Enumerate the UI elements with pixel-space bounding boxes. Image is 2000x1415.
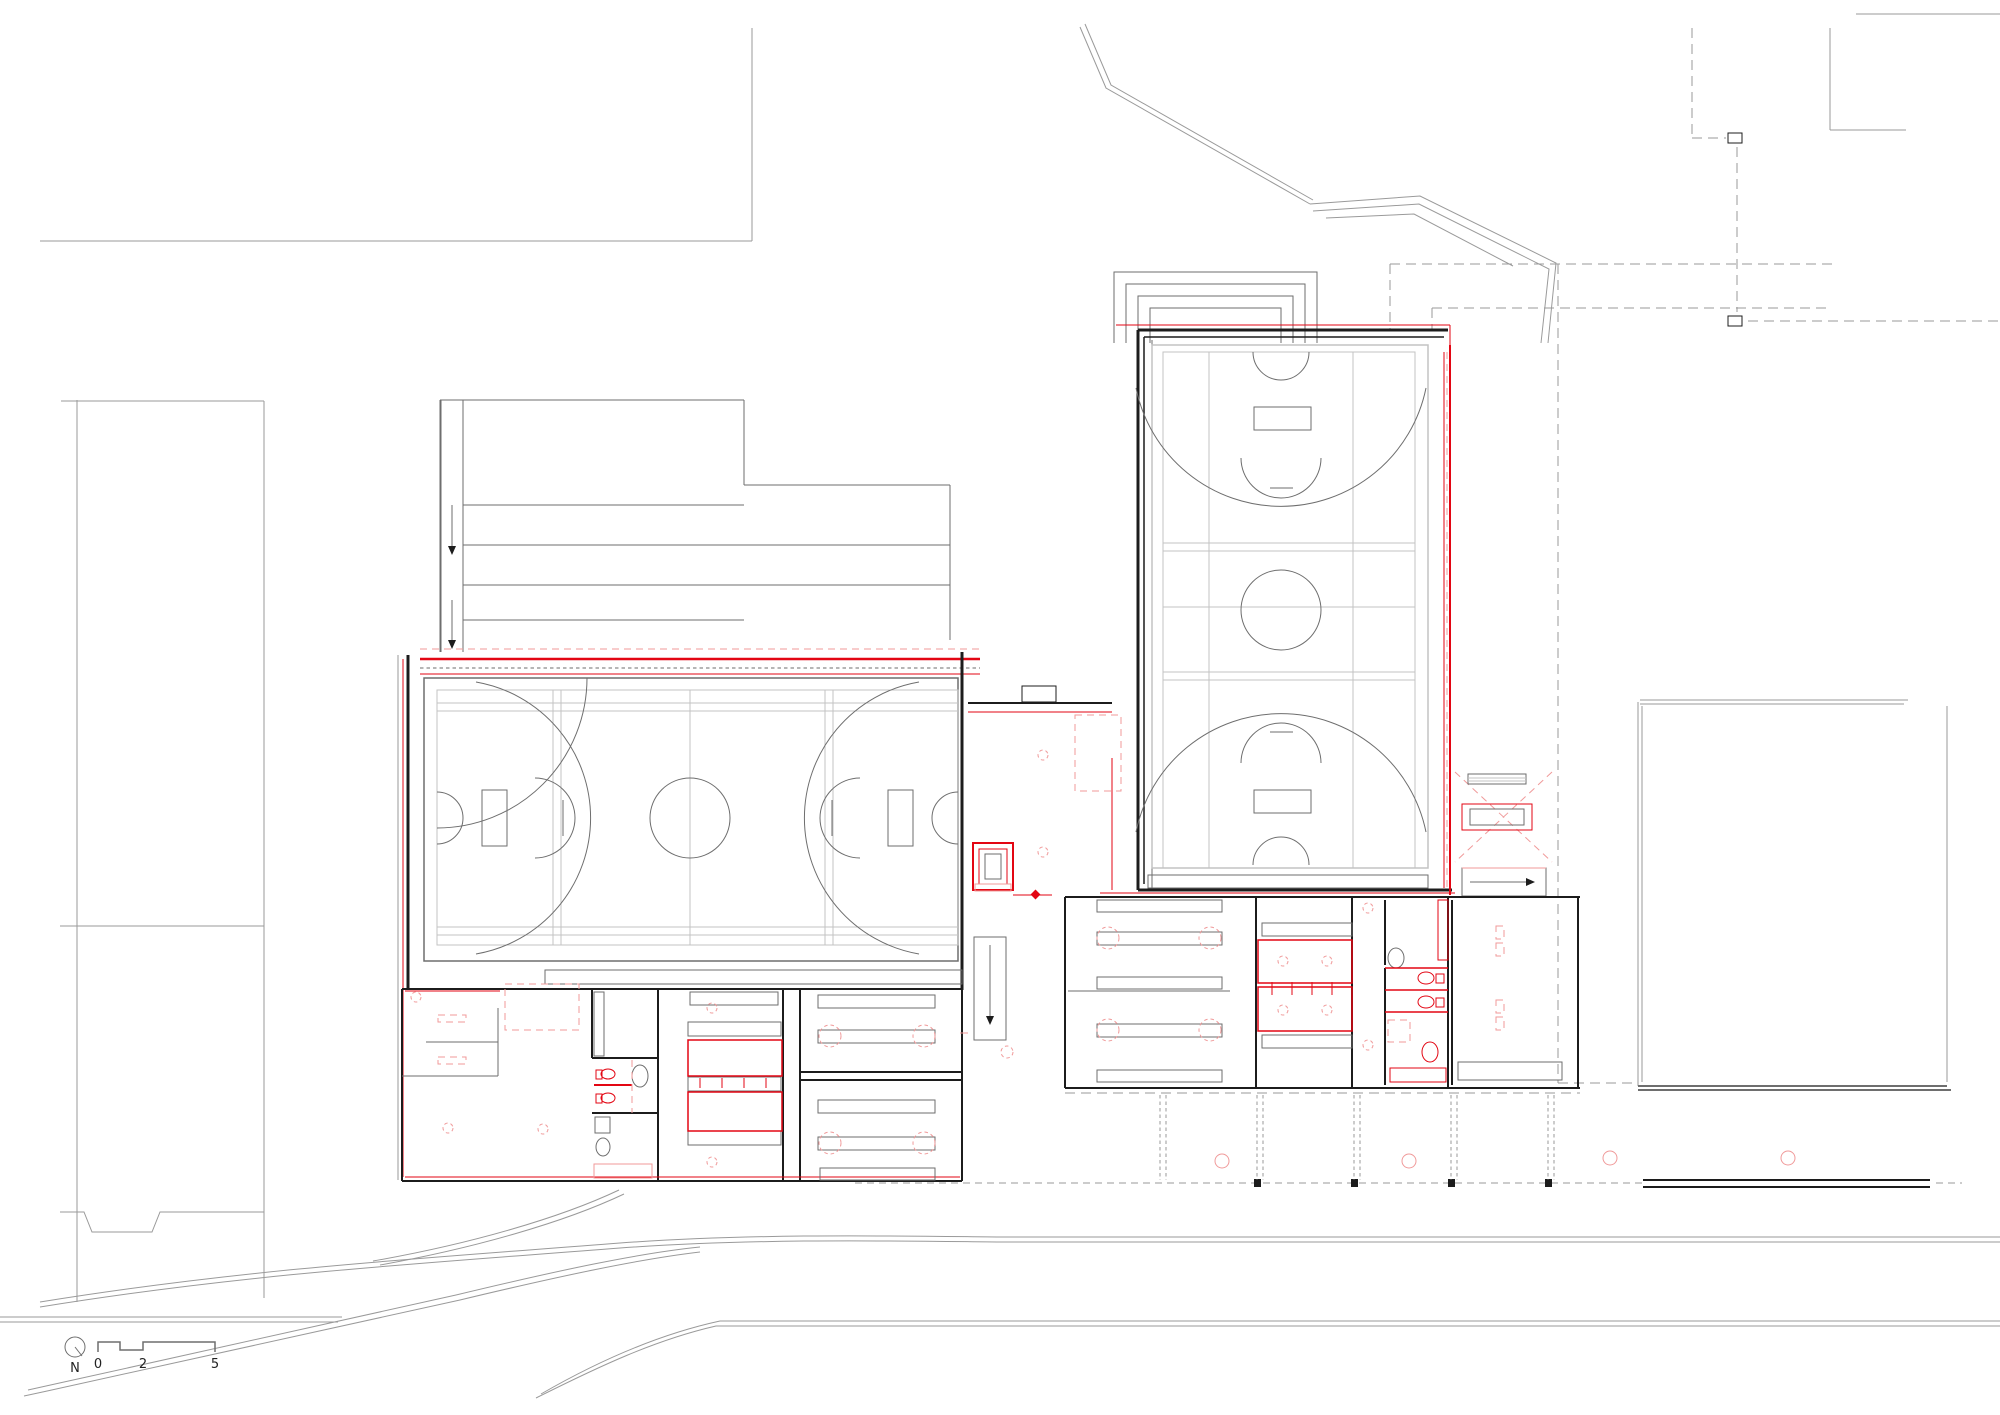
washer-icon bbox=[595, 1117, 610, 1133]
road-lines bbox=[0, 1190, 2000, 1398]
equipment-zone-dashed bbox=[505, 984, 579, 1030]
scale-tick-2: 2 bbox=[139, 1357, 147, 1372]
east-stepped-roof bbox=[1114, 272, 1317, 343]
canopy-column-axes bbox=[1065, 1093, 1580, 1180]
neighbor-building-east bbox=[1638, 700, 1951, 1090]
connector-lobby bbox=[960, 686, 1121, 1058]
sports-hall-west bbox=[398, 400, 980, 1181]
column-base-icon bbox=[1448, 1179, 1455, 1187]
column-base-icon bbox=[1545, 1179, 1552, 1187]
shower-rooms-west bbox=[688, 1040, 782, 1131]
wc-cells bbox=[594, 1060, 632, 1113]
column-base-icon bbox=[1254, 1179, 1261, 1187]
shower-tray bbox=[1388, 1020, 1410, 1042]
shelf-unit bbox=[594, 992, 604, 1056]
scale-bar-shape bbox=[98, 1342, 215, 1352]
hall-bench-row bbox=[1148, 875, 1428, 888]
boundary-dashed-northeast bbox=[1390, 28, 1998, 1083]
basin-icon bbox=[596, 1138, 610, 1156]
scale-tick-0: 0 bbox=[94, 1357, 102, 1372]
locker-room-benches-1 bbox=[688, 992, 781, 1145]
shower-rooms-east bbox=[1258, 923, 1352, 1048]
north-label: N bbox=[70, 1361, 80, 1376]
facade-columns bbox=[428, 638, 980, 654]
hall-bench-row bbox=[545, 970, 962, 984]
basketball-court-east bbox=[1136, 345, 1428, 888]
wc-fixture-icon bbox=[632, 1065, 648, 1087]
column-base-icon bbox=[1351, 1179, 1358, 1187]
locker-room-east-benches bbox=[1068, 900, 1230, 1082]
stair-arrow-icon bbox=[986, 1016, 994, 1025]
site-boundary-northwest bbox=[40, 28, 752, 241]
walkway-edge bbox=[855, 1179, 1962, 1187]
locker-strip bbox=[1438, 900, 1448, 960]
boundary-marker-icon bbox=[1728, 316, 1742, 326]
scale-tick-5: 5 bbox=[211, 1357, 219, 1372]
scale-bar: N 0 2 5 bbox=[65, 1337, 219, 1376]
bench-row bbox=[1458, 1062, 1562, 1080]
goal-niche bbox=[1022, 686, 1056, 702]
court-markings-east bbox=[1136, 352, 1426, 865]
site-boundary-diagonal bbox=[1080, 24, 1556, 343]
east-hall-walls bbox=[1110, 325, 1482, 895]
site-context bbox=[0, 14, 2000, 1398]
bench-red-dashed bbox=[594, 1164, 652, 1178]
site-corner-northeast bbox=[1830, 14, 2000, 130]
wc-area-east bbox=[1385, 900, 1448, 1082]
west-hall-walls bbox=[398, 652, 962, 1180]
basketball-court-west bbox=[424, 678, 962, 984]
locker-room-benches-2 bbox=[818, 995, 935, 1180]
west-roof-terrace bbox=[440, 400, 950, 652]
basin-icon bbox=[1388, 948, 1404, 968]
bench-red bbox=[1390, 1068, 1446, 1082]
west-facade-columns bbox=[1110, 346, 1138, 886]
boundary-marker-icon bbox=[1728, 133, 1742, 143]
entrance-mat-dashed bbox=[1075, 715, 1121, 791]
radiator-icon bbox=[438, 1015, 466, 1022]
sprinkler-icons-east bbox=[1363, 903, 1373, 1050]
east-annex-ramp bbox=[1455, 772, 1552, 896]
radiator-icon bbox=[438, 1057, 466, 1064]
sports-hall-east bbox=[1065, 272, 1580, 1088]
floor-plan-drawing: N 0 2 5 bbox=[0, 0, 2000, 1415]
east-room bbox=[1458, 926, 1562, 1080]
locker-block-east bbox=[1065, 893, 1580, 1088]
court-markings-west bbox=[437, 678, 958, 954]
driveway-curve bbox=[373, 1190, 624, 1265]
door-marker-icon bbox=[1031, 890, 1041, 900]
plan-canvas: N 0 2 5 bbox=[0, 0, 2000, 1415]
stair-northwest bbox=[441, 400, 463, 652]
sprinkler-icons-lobby bbox=[1001, 750, 1048, 1058]
stair-connector bbox=[960, 937, 1006, 1040]
north-arrow bbox=[65, 1337, 85, 1357]
neighbor-building-west bbox=[60, 400, 264, 1302]
wc-fixture-icon bbox=[1422, 1042, 1438, 1062]
walkway-drain-icons bbox=[1215, 1151, 1795, 1168]
locker-block-west bbox=[402, 984, 962, 1181]
stair-arrow-icon bbox=[1526, 878, 1535, 886]
west-hall-north-facade bbox=[420, 638, 980, 674]
garden-wall bbox=[1643, 1180, 1930, 1187]
stair-east bbox=[1462, 868, 1546, 896]
elevator bbox=[973, 843, 1013, 891]
sprinkler-icons-west bbox=[411, 992, 717, 1167]
